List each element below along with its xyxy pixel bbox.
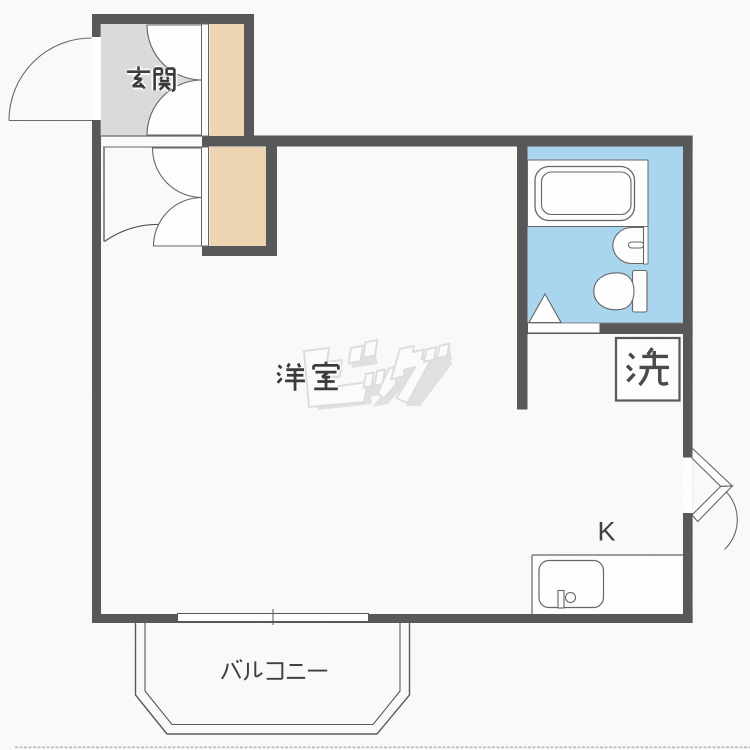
svg-text:K: K [598, 517, 616, 547]
